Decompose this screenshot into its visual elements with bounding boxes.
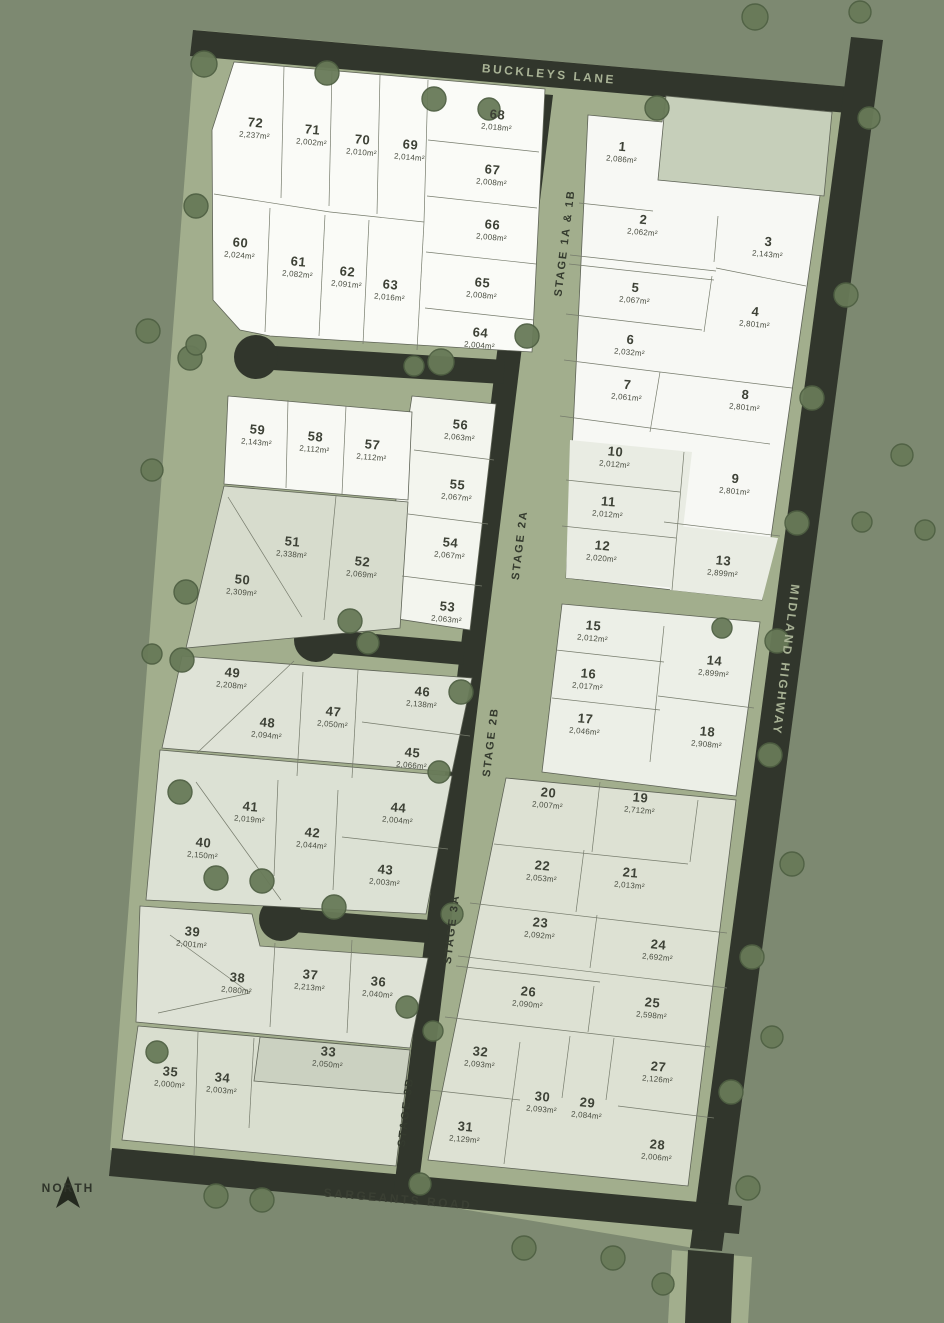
lot-13[interactable]: 132,899m² <box>707 553 740 580</box>
lot-69[interactable]: 692,014m² <box>394 137 427 164</box>
tree-icon <box>136 319 160 343</box>
lot-56[interactable]: 562,063m² <box>444 417 477 444</box>
lot-7[interactable]: 72,061m² <box>611 377 644 404</box>
lot-53[interactable]: 532,063m² <box>431 599 464 626</box>
lot-24[interactable]: 242,692m² <box>642 937 675 964</box>
lot-30[interactable]: 302,093m² <box>526 1089 559 1116</box>
lot-49[interactable]: 492,208m² <box>216 665 249 692</box>
north-indicator: NORTH <box>40 1178 96 1195</box>
lot-55[interactable]: 552,067m² <box>441 477 474 504</box>
tree-icon <box>338 609 362 633</box>
north-label: NORTH <box>40 1181 96 1195</box>
lot-25[interactable]: 252,598m² <box>636 995 669 1022</box>
lot-10[interactable]: 102,012m² <box>599 444 632 471</box>
cul-de-sac-1-bulb <box>234 335 278 379</box>
lot-20[interactable]: 202,007m² <box>532 785 565 812</box>
lot-36[interactable]: 362,040m² <box>362 974 395 1001</box>
lot-14[interactable]: 142,899m² <box>698 653 731 680</box>
lot-3[interactable]: 32,143m² <box>752 234 785 261</box>
tree-icon <box>146 1041 168 1063</box>
tree-icon <box>712 618 732 638</box>
tree-icon <box>852 512 872 532</box>
tree-icon <box>357 632 379 654</box>
lot-8[interactable]: 82,801m² <box>729 387 762 414</box>
lot-66[interactable]: 662,008m² <box>476 217 509 244</box>
tree-icon <box>736 1176 760 1200</box>
tree-icon <box>422 87 446 111</box>
lot-5[interactable]: 52,067m² <box>619 280 652 307</box>
tree-icon <box>315 61 339 85</box>
lot-34[interactable]: 342,003m² <box>206 1070 239 1097</box>
tree-icon <box>742 4 768 30</box>
lot-54[interactable]: 542,067m² <box>434 535 467 562</box>
tree-icon <box>174 580 198 604</box>
lot-16[interactable]: 162,017m² <box>572 666 605 693</box>
lot-46[interactable]: 462,138m² <box>406 684 439 711</box>
lot-71[interactable]: 712,002m² <box>296 122 329 149</box>
lot-50[interactable]: 502,309m² <box>226 572 259 599</box>
tree-icon <box>449 680 473 704</box>
lot-31[interactable]: 312,129m² <box>449 1119 482 1146</box>
tree-icon <box>780 852 804 876</box>
lot-17[interactable]: 172,046m² <box>569 711 602 738</box>
lot-47[interactable]: 472,050m² <box>317 704 350 731</box>
lot-62[interactable]: 622,091m² <box>331 264 364 291</box>
tree-icon <box>761 1026 783 1048</box>
tree-icon <box>915 520 935 540</box>
tree-icon <box>404 356 424 376</box>
lot-26[interactable]: 262,090m² <box>512 984 545 1011</box>
tree-icon <box>428 349 454 375</box>
tree-icon <box>645 96 669 120</box>
lot-64[interactable]: 642,004m² <box>464 325 497 352</box>
lot-22[interactable]: 222,053m² <box>526 858 559 885</box>
tree-icon <box>891 444 913 466</box>
tree-icon <box>515 324 539 348</box>
tree-icon <box>800 386 824 410</box>
lot-44[interactable]: 442,004m² <box>382 800 415 827</box>
tree-icon <box>512 1236 536 1260</box>
lot-18[interactable]: 182,908m² <box>691 724 724 751</box>
lot-6[interactable]: 62,032m² <box>614 332 647 359</box>
tree-icon <box>719 1080 743 1104</box>
lot-65[interactable]: 652,008m² <box>466 275 499 302</box>
lot-29[interactable]: 292,084m² <box>571 1095 604 1122</box>
lot-41[interactable]: 412,019m² <box>234 799 267 826</box>
lot-57[interactable]: 572,112m² <box>356 437 388 464</box>
lot-58[interactable]: 582,112m² <box>299 429 331 456</box>
lot-4[interactable]: 42,801m² <box>739 304 772 331</box>
lot-39[interactable]: 392,001m² <box>176 924 209 951</box>
tree-icon <box>858 107 880 129</box>
lot-48[interactable]: 482,094m² <box>251 715 284 742</box>
tree-icon <box>184 194 208 218</box>
lot-15[interactable]: 152,012m² <box>577 618 610 645</box>
lot-32[interactable]: 322,093m² <box>464 1044 497 1071</box>
lot-9[interactable]: 92,801m² <box>719 471 752 498</box>
subdivision-masterplan: BUCKLEYS LANE MIDLAND HIGHWAY SARGEANTS … <box>0 0 944 1323</box>
lot-52[interactable]: 522,069m² <box>346 554 379 581</box>
lot-19[interactable]: 192,712m² <box>624 790 657 817</box>
lot-28[interactable]: 282,006m² <box>641 1137 674 1164</box>
lot-11[interactable]: 112,012m² <box>592 494 625 521</box>
lot-63[interactable]: 632,016m² <box>374 277 407 304</box>
lot-21[interactable]: 212,013m² <box>614 865 647 892</box>
lot-42[interactable]: 422,044m² <box>296 825 329 852</box>
lot-35[interactable]: 352,000m² <box>154 1064 187 1091</box>
lot-59[interactable]: 592,143m² <box>241 422 274 449</box>
lot-61[interactable]: 612,082m² <box>282 254 315 281</box>
lot-43[interactable]: 432,003m² <box>369 862 402 889</box>
tree-icon <box>849 1 871 23</box>
tree-icon <box>322 895 346 919</box>
tree-icon <box>170 648 194 672</box>
tree-icon <box>204 866 228 890</box>
tree-icon <box>396 996 418 1018</box>
tree-icon <box>409 1173 431 1195</box>
tree-icon <box>168 780 192 804</box>
tree-icon <box>186 335 206 355</box>
lot-72[interactable]: 722,237m² <box>239 115 272 142</box>
lot-45[interactable]: 452,066m² <box>396 745 429 772</box>
lot-33[interactable]: 332,050m² <box>312 1044 345 1071</box>
tree-icon <box>191 51 217 77</box>
tree-icon <box>758 743 782 767</box>
lot-70[interactable]: 702,010m² <box>346 132 379 159</box>
lot-1[interactable]: 12,086m² <box>606 139 639 166</box>
reserve-parcel <box>658 96 832 196</box>
lot-27[interactable]: 272,126m² <box>642 1059 675 1086</box>
tree-icon <box>423 1021 443 1041</box>
tree-icon <box>250 869 274 893</box>
tree-icon <box>250 1188 274 1212</box>
lot-2[interactable]: 22,062m² <box>627 212 660 239</box>
lot-68[interactable]: 682,018m² <box>481 107 514 134</box>
tree-icon <box>204 1184 228 1208</box>
lot-37[interactable]: 372,213m² <box>294 967 327 994</box>
road-south-stub <box>685 1250 734 1323</box>
lot-51[interactable]: 512,338m² <box>276 534 309 561</box>
tree-icon <box>834 283 858 307</box>
lot-38[interactable]: 382,080m² <box>221 970 254 997</box>
tree-icon <box>141 459 163 481</box>
lot-23[interactable]: 232,092m² <box>524 915 557 942</box>
tree-icon <box>785 511 809 535</box>
tree-icon <box>740 945 764 969</box>
lot-67[interactable]: 672,008m² <box>476 162 509 189</box>
lot-12[interactable]: 122,020m² <box>586 538 619 565</box>
tree-icon <box>601 1246 625 1270</box>
tree-icon <box>652 1273 674 1295</box>
lot-60[interactable]: 602,024m² <box>224 235 257 262</box>
tree-icon <box>428 761 450 783</box>
tree-icon <box>142 644 162 664</box>
lot-40[interactable]: 402,150m² <box>187 835 220 862</box>
